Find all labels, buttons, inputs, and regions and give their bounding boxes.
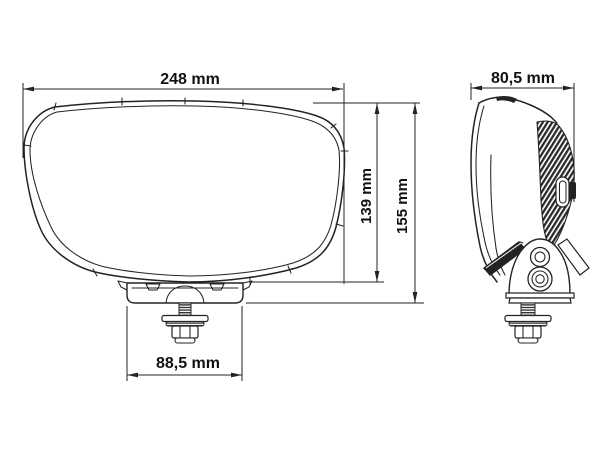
pivot-screw-upper (531, 248, 550, 267)
mounting-bolt-side (505, 303, 551, 343)
mounting-bracket-front (118, 281, 252, 303)
dimension-body-height-label: 139 mm (358, 168, 375, 224)
bracket-base-lower (509, 298, 571, 303)
bolt-nut-side (515, 326, 541, 338)
side-view (471, 96, 589, 343)
bolt-washer-front (162, 316, 208, 322)
front-lens-outer-outline (24, 101, 345, 282)
front-lens-inner-bezel (30, 106, 340, 276)
bolt-thread-side (521, 303, 535, 316)
side-top-edge (479, 97, 557, 123)
bolt-collar-side (509, 322, 547, 327)
bracket-base-upper (506, 293, 574, 298)
dimension-width-label: 248 mm (160, 71, 220, 88)
mounting-bolt-front (162, 303, 208, 343)
outline-tick-marks (24, 98, 348, 284)
lamp-tab-right (243, 281, 252, 290)
dimension-bracket-width-label: 88,5 mm (156, 355, 220, 372)
bolt-collar-front (166, 322, 204, 327)
side-lens-front-edge (471, 103, 497, 282)
bolt-nut-cap-side (518, 338, 538, 343)
dimension-total-height-label: 155 mm (394, 178, 411, 234)
dimension-width: 248 mm (23, 71, 344, 284)
dimension-depth-label: 80,5 mm (491, 70, 555, 87)
side-connector-clip (569, 182, 576, 199)
bolt-nut-front (172, 326, 198, 338)
front-view (24, 98, 348, 343)
bolt-washer-side (505, 316, 551, 322)
dimension-drawing: 248 mm 139 mm 155 mm 88,5 mm 80,5 mm (0, 0, 610, 450)
side-top-rubber-strip (496, 96, 517, 103)
dimension-drawing-canvas: 248 mm 139 mm 155 mm 88,5 mm 80,5 mm (0, 0, 610, 450)
lamp-tab-left (118, 281, 127, 290)
bolt-nut-cap-front (175, 338, 195, 343)
bolt-thread-front (179, 303, 191, 316)
